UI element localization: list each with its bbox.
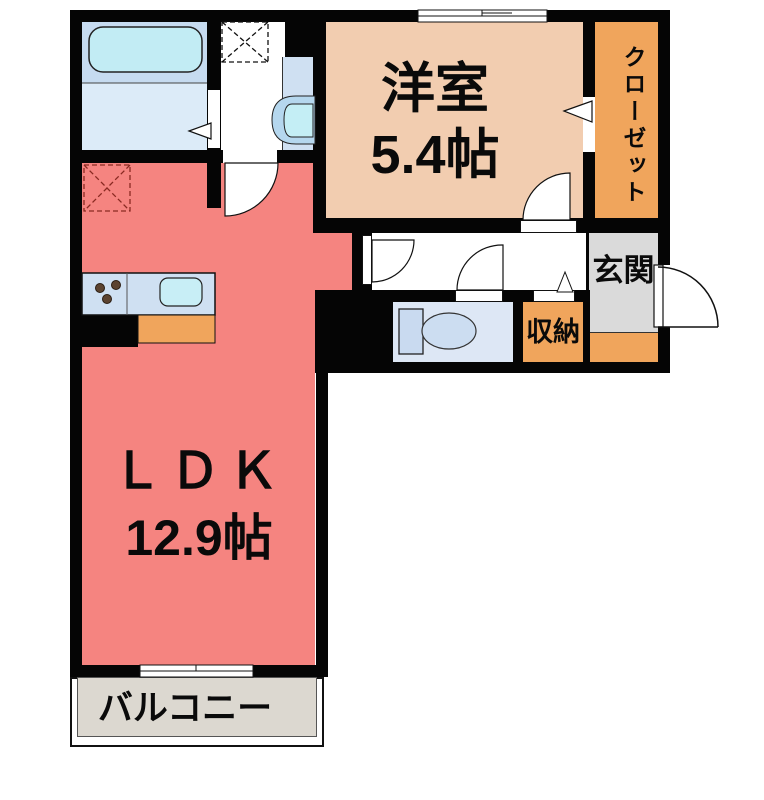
wall-left (70, 10, 82, 677)
entrance-step (589, 332, 658, 362)
floorplan-canvas: { "rooms": { "western_room": { "name": "… (0, 0, 764, 800)
hallway (370, 233, 589, 290)
wall-wing-south (315, 362, 670, 373)
bathroom-door-gap (208, 90, 220, 148)
toilet-room (393, 302, 513, 362)
balcony-label: バルコニー (66, 688, 304, 730)
ldk-label: ＬＤＫ 12.9帖 (70, 438, 328, 572)
wall-westernroom-south (313, 218, 670, 233)
bathroom-floor-area (82, 83, 207, 150)
westernroom-door-gap (520, 220, 577, 233)
western-room-label: 洋室 5.4帖 (305, 56, 565, 188)
entrance-label: 玄関 (589, 252, 658, 289)
storage-door-leaf (533, 290, 575, 302)
storage-label: 収納 (523, 316, 583, 348)
ldk-room (82, 163, 315, 665)
hallway-door-leaf (362, 235, 372, 285)
ldk-area: 12.9帖 (70, 505, 328, 572)
toilet-door-leaf (455, 290, 503, 302)
ldk-name: ＬＤＫ (70, 438, 328, 505)
entrance-door-gap (658, 265, 670, 327)
wall-ldk-south (70, 665, 328, 677)
wall-storage-east (583, 302, 590, 362)
bathroom-tub-area (82, 22, 207, 83)
closet-door-gap (583, 97, 595, 152)
wall-toilet-east (513, 298, 523, 362)
washroom-door-gap (223, 150, 277, 163)
wall-core-block (315, 290, 393, 373)
closet-label: クローゼット (600, 36, 646, 216)
wall-vanity-block (285, 12, 315, 57)
western-room-name: 洋室 (305, 56, 565, 122)
wall-kitchen-block (82, 315, 138, 347)
wall-top (70, 10, 670, 22)
wall-bath-south (70, 150, 317, 163)
western-room-area: 5.4帖 (305, 122, 565, 188)
